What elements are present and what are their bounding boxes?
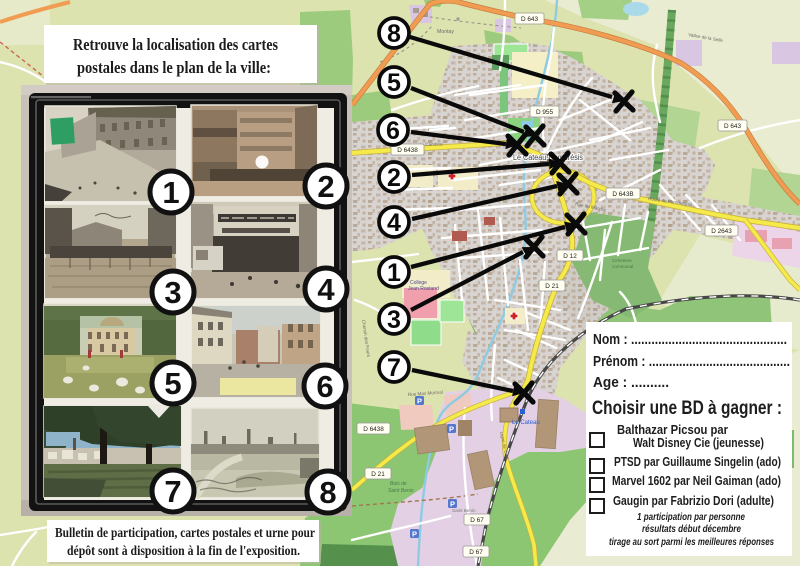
svg-text:D 21: D 21 <box>371 471 385 478</box>
svg-text:7: 7 <box>387 354 401 382</box>
svg-text:3: 3 <box>387 306 401 334</box>
svg-text:D 955: D 955 <box>536 109 553 116</box>
svg-text:D 67: D 67 <box>469 549 483 556</box>
svg-text:D 6438: D 6438 <box>363 426 384 433</box>
svg-text:D 12: D 12 <box>563 253 577 260</box>
svg-text:P: P <box>450 499 455 508</box>
svg-text:Age : ..........: Age : .......... <box>593 375 669 391</box>
svg-text:1: 1 <box>162 175 179 210</box>
svg-text:5: 5 <box>387 69 401 97</box>
svg-text:Montay: Montay <box>437 29 454 35</box>
svg-text:1: 1 <box>387 259 401 287</box>
svg-text:Cimetiere: Cimetiere <box>612 258 632 263</box>
svg-text:Prénom : .....................: Prénom : ...............................… <box>593 354 790 370</box>
svg-text:8: 8 <box>387 20 401 48</box>
svg-text:Le Cateau: Le Cateau <box>512 420 540 426</box>
svg-text:Saint Benin: Saint Benin <box>388 488 414 494</box>
svg-text:Balthazar Picsou par: Balthazar Picsou par <box>617 423 728 437</box>
svg-text:P: P <box>417 396 422 405</box>
svg-text:D 6438: D 6438 <box>397 147 418 154</box>
svg-text:Marvel 1602 par Neil Gaiman (a: Marvel 1602 par Neil Gaiman (ado) <box>612 474 781 488</box>
svg-text:dépôt sont à disposition à la: dépôt sont à disposition à la fin de l'e… <box>67 543 300 558</box>
svg-text:P: P <box>449 424 454 433</box>
svg-text:2: 2 <box>387 164 401 192</box>
svg-text:Jean Rostand: Jean Rostand <box>408 286 439 292</box>
svg-text:D 643B: D 643B <box>612 191 633 198</box>
svg-text:4: 4 <box>317 272 335 307</box>
svg-text:D 2643: D 2643 <box>711 228 732 235</box>
svg-text:D 643: D 643 <box>521 16 538 23</box>
svg-text:communal: communal <box>612 264 633 269</box>
svg-text:Choisir une BD à gagner :: Choisir une BD à gagner : <box>592 397 782 419</box>
svg-text:Saint Benin: Saint Benin <box>452 508 476 513</box>
svg-text:P: P <box>412 529 417 538</box>
svg-text:6: 6 <box>386 117 400 145</box>
svg-text:tirage au sort parmi les meill: tirage au sort parmi les meilleures répo… <box>609 537 774 548</box>
svg-text:1 participation par personne: 1 participation par personne <box>637 512 745 523</box>
svg-text:D 21: D 21 <box>545 283 559 290</box>
svg-text:Gaugin par Fabrizio Dori (adul: Gaugin par Fabrizio Dori (adulte) <box>613 494 774 508</box>
svg-text:Bois de: Bois de <box>390 481 407 487</box>
svg-text:7: 7 <box>164 474 181 509</box>
svg-text:Retrouve la localisation des c: Retrouve la localisation des cartes <box>73 35 278 54</box>
svg-text:5: 5 <box>164 366 181 401</box>
svg-text:Nom : ........................: Nom : ..................................… <box>593 332 787 348</box>
svg-text:D 67: D 67 <box>470 517 484 524</box>
svg-text:4: 4 <box>387 209 401 237</box>
svg-text:2: 2 <box>317 169 334 204</box>
svg-text:PTSD par Guillaume Singelin (a: PTSD par Guillaume Singelin (ado) <box>614 455 781 469</box>
svg-text:postales dans le plan de la vi: postales dans le plan de la ville: <box>77 58 271 77</box>
svg-text:8: 8 <box>319 475 336 510</box>
svg-text:Bulletin de participation, car: Bulletin de participation, cartes postal… <box>55 525 315 540</box>
svg-text:6: 6 <box>316 369 333 404</box>
svg-text:résultats début décembre: résultats début décembre <box>642 524 741 535</box>
svg-text:Walt Disney Cie (jeunesse): Walt Disney Cie (jeunesse) <box>633 436 764 450</box>
svg-text:3: 3 <box>164 275 181 310</box>
svg-text:D 643: D 643 <box>724 123 741 130</box>
